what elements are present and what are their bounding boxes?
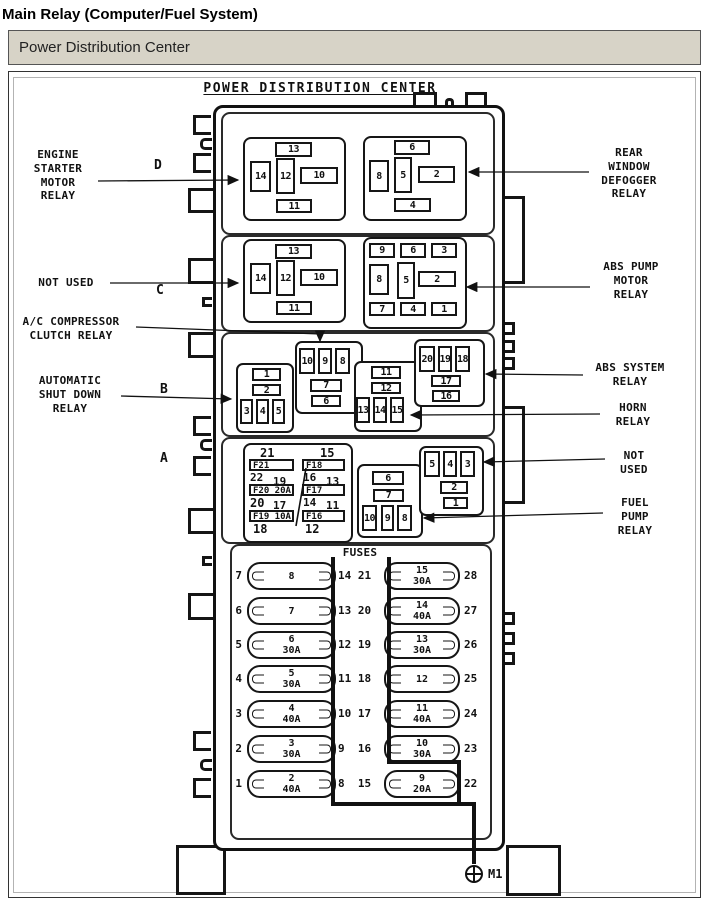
fuse-slot-number: 2	[228, 742, 242, 755]
relay-pin: 10	[300, 269, 338, 286]
relay-pin: 4	[394, 198, 431, 212]
fuse-number: 21	[260, 446, 274, 460]
fuse-slot-number: 24	[464, 707, 477, 720]
page-title: Main Relay (Computer/Fuel System)	[2, 6, 258, 23]
header-bar: Power Distribution Center	[8, 30, 701, 65]
section-label-c: C	[156, 283, 164, 298]
fuses-title: FUSES	[335, 546, 385, 560]
relay-pin: 2	[418, 271, 456, 287]
mounting-tab	[193, 456, 211, 476]
fuse-slot-number: 4	[228, 672, 242, 685]
page: Main Relay (Computer/Fuel System) Power …	[0, 0, 709, 906]
fuse: 14 40A	[384, 597, 460, 625]
fuse: 6 30A	[247, 631, 336, 659]
fuse-slot-number: 26	[464, 638, 477, 651]
relay-pin: 1	[252, 368, 281, 381]
relay-pin: 6	[400, 243, 426, 258]
section-label-a: A	[160, 451, 168, 466]
relay-pin: 5	[394, 157, 412, 193]
mounting-tab	[193, 115, 211, 135]
relay-pin: 13	[275, 142, 312, 157]
relay-pin: 7	[373, 489, 404, 502]
callout-rear-window-defogger-relay: REAR WINDOW DEFOGGER RELAY	[592, 146, 666, 201]
fuse: 10 30A	[384, 735, 460, 763]
mounting-tab	[188, 508, 214, 534]
callout-abs-pump-motor-relay: ABS PUMP MOTOR RELAY	[594, 260, 668, 301]
relay-pin: 6	[311, 395, 341, 407]
ground-label-m1: M1	[488, 867, 502, 881]
fuse-number: 14	[303, 496, 316, 509]
fuse-slot-number: 22	[464, 777, 477, 790]
relay-pin: 13	[275, 244, 312, 259]
mounting-tab	[200, 439, 212, 451]
callout-ac-compressor-clutch-relay: A/C COMPRESSOR CLUTCH RELAY	[8, 315, 134, 343]
fuse: 4 40A	[247, 700, 336, 728]
relay-pin: 17	[431, 375, 461, 387]
relay-pin: 6	[394, 140, 430, 155]
relay-pin: 11	[276, 301, 312, 315]
relay-pin: 3	[240, 399, 253, 424]
section-label-d: D	[154, 158, 162, 173]
fuse-slot-number: 5	[228, 638, 242, 651]
mounting-tab	[200, 138, 212, 150]
relay-pin: 5	[424, 451, 440, 477]
relay-pin: 14	[250, 263, 271, 294]
mini-fuse: F16 20A	[302, 510, 345, 522]
mounting-foot	[176, 845, 226, 895]
mounting-tab	[193, 153, 211, 173]
mounting-tab	[193, 778, 211, 798]
relay-pin: 8	[335, 348, 350, 374]
mounting-tab	[193, 731, 211, 751]
fuse-number: 22	[250, 471, 263, 484]
callout-engine-starter-relay: ENGINE STARTER MOTOR RELAY	[14, 148, 102, 203]
fuse-slot-number: 25	[464, 672, 477, 685]
callout-automatic-shut-down-relay: AUTOMATIC SHUT DOWN RELAY	[22, 374, 118, 415]
relay-pin: 5	[397, 262, 415, 299]
relay-pin: 9	[318, 348, 332, 374]
relay-pin: 8	[369, 264, 389, 295]
relay-pin: 11	[371, 366, 401, 379]
fuse-number: 16	[303, 471, 316, 484]
relay-pin: 4	[443, 451, 457, 477]
relay-pin: 14	[250, 161, 271, 192]
relay-pin: 10	[300, 167, 338, 184]
relay-pin: 10	[362, 505, 377, 531]
pdc-title: POWER DISTRIBUTION CENTER	[190, 81, 450, 96]
fuse-terminal-numbers: 10 17	[338, 707, 371, 720]
fuse-number: 15	[320, 446, 334, 460]
callout-abs-system-relay: ABS SYSTEM RELAY	[586, 361, 674, 389]
relay-pin: 2	[252, 384, 281, 396]
section-label-b: B	[160, 382, 168, 397]
fuse-terminal-numbers: 13 20	[338, 604, 371, 617]
relay-pin: 6	[372, 471, 404, 485]
relay-pin: 9	[369, 243, 395, 258]
fuse-slot-number: 6	[228, 604, 242, 617]
relay-pin: 2	[440, 481, 468, 494]
fuse-terminal-numbers: 14 21	[338, 569, 371, 582]
relay-pin: 12	[276, 158, 295, 194]
relay-pin: 3	[431, 243, 457, 258]
fuse: 13 30A	[384, 631, 460, 659]
callout-not-used-right: NOT USED	[608, 449, 660, 477]
relay-pin: 12	[276, 260, 295, 296]
relay-pin: 4	[400, 302, 426, 316]
fuse: 9 20A	[384, 770, 460, 798]
fuse-terminal-numbers: 8 15	[338, 777, 371, 790]
relay-pin: 11	[276, 199, 312, 213]
relay-pin: 7	[369, 302, 395, 316]
mounting-tab	[202, 556, 212, 566]
callout-horn-relay: HORN RELAY	[603, 401, 663, 429]
fuse: 3 30A	[247, 735, 336, 763]
relay-pin: 8	[397, 505, 412, 531]
fuse: 15 30A	[384, 562, 460, 590]
relay-pin: 20	[419, 346, 435, 372]
callout-fuel-pump-relay: FUEL PUMP RELAY	[606, 496, 664, 537]
mini-fuse: F21	[249, 459, 294, 471]
relay-pin: 1	[431, 302, 457, 316]
relay-pin: 5	[272, 399, 285, 424]
fuse: 11 40A	[384, 700, 460, 728]
relay-pin: 1	[443, 497, 468, 509]
fuse: 12	[384, 665, 460, 693]
relay-pin: 13	[356, 397, 370, 423]
mounting-tab	[202, 297, 212, 307]
fuse-slot-number: 27	[464, 604, 477, 617]
fuse-number: 20	[250, 496, 264, 510]
mounting-tab	[188, 258, 214, 284]
mini-fuse: F20 20A	[249, 484, 294, 496]
fuse: 2 40A	[247, 770, 336, 798]
fuse-slot-number: 3	[228, 707, 242, 720]
fuse-number: 18	[253, 522, 267, 536]
mini-fuse: F19 10A	[249, 510, 294, 522]
relay-pin: 12	[371, 382, 401, 394]
relay-pin: 10	[299, 348, 315, 374]
relay-pin: 7	[310, 379, 342, 392]
relay-pin: 3	[460, 451, 475, 477]
mounting-tab	[188, 332, 214, 358]
mounting-tab	[188, 188, 214, 213]
fuse-number: 12	[305, 522, 319, 536]
relay-pin: 18	[455, 346, 470, 372]
mini-fuse: F18	[302, 459, 345, 471]
header-title: Power Distribution Center	[19, 39, 190, 56]
mounting-tab	[193, 416, 211, 436]
relay-pin: 9	[381, 505, 394, 531]
relay-pin: 8	[369, 160, 389, 192]
fuse-slot-number: 1	[228, 777, 242, 790]
fuse-slot-number: 7	[228, 569, 242, 582]
fuse-terminal-numbers: 9 16	[338, 742, 371, 755]
fuse-slot-number: 23	[464, 742, 477, 755]
mounting-tab	[188, 593, 214, 620]
fuse-terminal-numbers: 11 18	[338, 672, 371, 685]
fuse: 5 30A	[247, 665, 336, 693]
fuse: 8	[247, 562, 336, 590]
mounting-foot	[506, 845, 561, 896]
callout-not-used-left: NOT USED	[24, 276, 108, 290]
relay-pin: 4	[256, 399, 269, 424]
relay-pin: 2	[418, 166, 455, 183]
mounting-tab	[200, 759, 212, 771]
relay-pin: 15	[390, 397, 404, 423]
relay-pin: 16	[432, 390, 460, 402]
mini-fuse: F17 10A	[302, 484, 345, 496]
relay-pin: 19	[438, 346, 452, 372]
fuse: 7	[247, 597, 336, 625]
fuse-slot-number: 28	[464, 569, 477, 582]
fuse-terminal-numbers: 12 19	[338, 638, 371, 651]
relay-pin: 14	[373, 397, 387, 423]
